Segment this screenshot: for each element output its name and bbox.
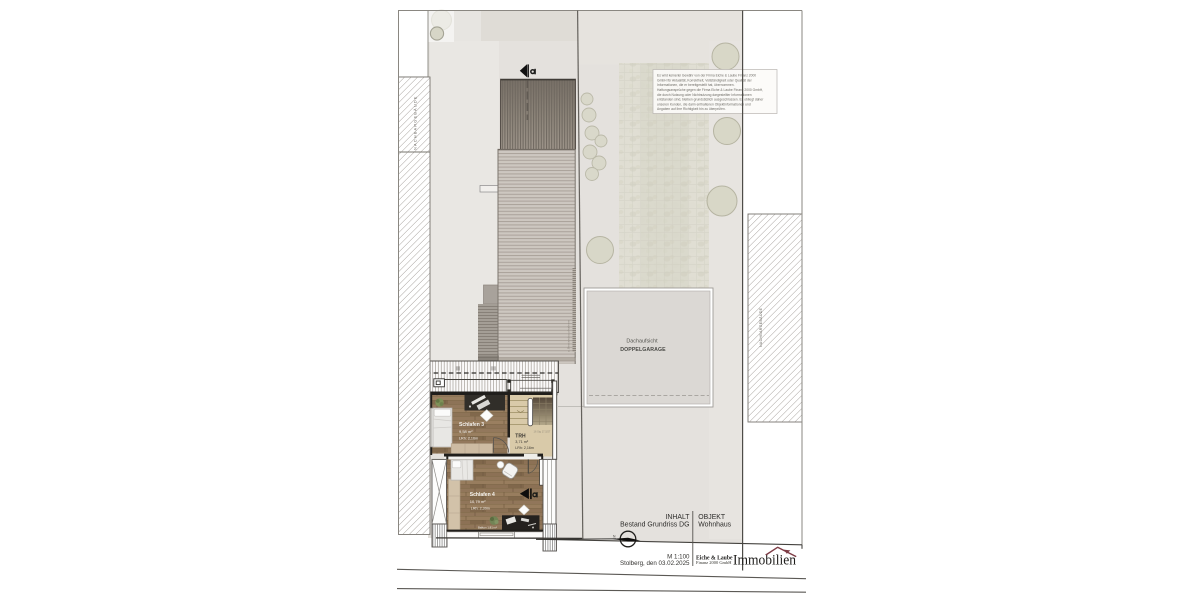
svg-text:Schlafen 3: Schlafen 3 <box>459 422 484 428</box>
svg-text:entstanden sind, bleiben grund: entstanden sind, bleiben grundsätzlich a… <box>657 98 764 102</box>
svg-text:Stolberg, den 03.02.2025: Stolberg, den 03.02.2025 <box>620 560 690 567</box>
svg-text:GmbH für Aktualität, Korrekthe: GmbH für Aktualität, Korrektheit, Vollst… <box>657 78 753 82</box>
svg-text:unseren Kunden, die darin enth: unseren Kunden, die darin enthaltenen Ob… <box>657 102 751 106</box>
svg-text:a.Bestandsaufnahme: a.Bestandsaufnahme <box>567 320 571 352</box>
svg-text:TRH: TRH <box>515 433 526 439</box>
svg-text:3,71 m²: 3,71 m² <box>515 440 529 444</box>
svg-text:Finanz 2000 GmbH: Finanz 2000 GmbH <box>696 561 732 565</box>
svg-text:LRh: 2,16m: LRh: 2,16m <box>515 446 534 450</box>
svg-text:NACHBARGEBÄUDE: NACHBARGEBÄUDE <box>413 95 418 150</box>
svg-text:Informationen, die er bereitge: Informationen, die er bereitgestellt hat… <box>657 83 735 87</box>
svg-text:10,79 m²: 10,79 m² <box>470 499 486 504</box>
svg-text:Immobilien: Immobilien <box>733 553 796 569</box>
svg-text:LRh: 2,30m: LRh: 2,30m <box>471 507 490 511</box>
svg-text:LRh: 2,16m: LRh: 2,16m <box>459 437 478 441</box>
svg-text:Haftungsansprüche gegen die Fi: Haftungsansprüche gegen die Firma Eiche … <box>657 88 763 92</box>
svg-text:Wohnhaus: Wohnhaus <box>698 522 731 529</box>
svg-text:OBJEKT: OBJEKT <box>698 514 726 521</box>
svg-text:9,58 m²: 9,58 m² <box>459 429 473 434</box>
svg-text:Angaben auf ihre Richtigkeit h: Angaben auf ihre Richtigkeit hin zu über… <box>657 107 726 111</box>
svg-text:Dachaufsicht: Dachaufsicht <box>626 339 658 345</box>
svg-text:Bestand Grundriss DG: Bestand Grundriss DG <box>620 522 689 529</box>
svg-text:Schlafen 4: Schlafen 4 <box>470 492 495 498</box>
svg-text:INHALT: INHALT <box>666 514 691 521</box>
svg-text:NACHBARGEBÄUDE: NACHBARGEBÄUDE <box>759 307 763 347</box>
svg-text:16 Stg 17,5/27: 16 Stg 17,5/27 <box>534 429 551 433</box>
svg-text:die durch Nutzung oder Nichtnu: die durch Nutzung oder Nichtnutzung darg… <box>657 93 752 97</box>
svg-text:Es wird keinerlei Gewähr von d: Es wird keinerlei Gewähr von der Firma E… <box>657 74 756 78</box>
svg-text:DOPPELGARAGE: DOPPELGARAGE <box>620 347 666 353</box>
svg-text:Balkon 1,81 m²: Balkon 1,81 m² <box>478 526 497 530</box>
